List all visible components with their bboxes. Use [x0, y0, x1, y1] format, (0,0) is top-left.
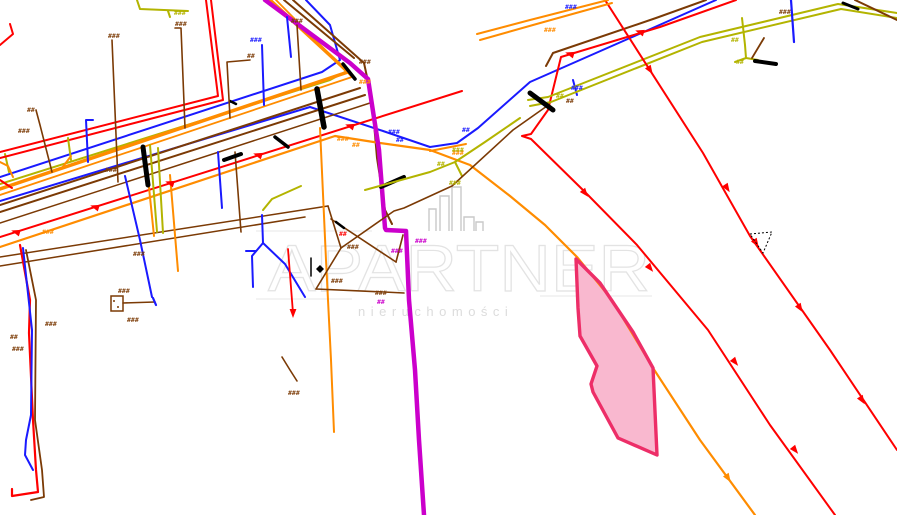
pipe-label: ###	[375, 289, 387, 297]
flow-arrow-icon	[290, 309, 297, 318]
olive-right-a-line	[528, 4, 897, 100]
pipe-label: ###	[571, 84, 583, 92]
olive-bend-line	[263, 186, 301, 210]
pipe-label: ###	[12, 345, 24, 353]
black-seg-right-line	[755, 61, 776, 64]
pipe-label: ###	[127, 316, 139, 324]
brown-corner-topright-line	[855, 0, 897, 20]
pipe-label: ###	[108, 32, 120, 40]
pipe-label: ##	[566, 97, 574, 105]
black-bar-left-line	[143, 147, 148, 185]
pipe-label: ##	[437, 160, 445, 168]
cabinet-dot	[117, 306, 119, 308]
red-topleft-b-line	[0, 0, 223, 158]
brown-ne-a-line	[284, 0, 354, 58]
flow-arrow-icon	[344, 121, 355, 130]
blue-stub-topright-line	[791, 0, 794, 42]
pipe-label: ###	[250, 36, 262, 44]
pipe-label: ###	[18, 127, 30, 135]
black-seg-a-line	[275, 137, 288, 147]
orange-curve-to-parcel-line	[0, 136, 755, 515]
red-corner-line	[0, 24, 13, 45]
pipe-label: ###	[105, 166, 117, 174]
pipe-label: ###	[565, 3, 577, 11]
orange-double-a-line	[477, 0, 608, 34]
pipe-label: ###	[391, 247, 403, 255]
pipe-label: ##	[247, 52, 255, 60]
pipe-label: ###	[337, 135, 349, 143]
pipe-label: ##	[377, 298, 385, 306]
black-bar-mid-line	[224, 154, 241, 160]
black-x-mark-line	[336, 222, 344, 228]
black-topleft-dot-line	[230, 101, 236, 104]
map-viewport[interactable]: APARTNER nieruchomości #################…	[0, 0, 897, 515]
pipe-label: ##	[27, 106, 35, 114]
cabinet-rect-symbol	[111, 296, 123, 311]
brown-stub-bottom-line	[282, 357, 297, 381]
pipe-label: ###	[359, 58, 371, 66]
flow-arrow-icon	[89, 202, 100, 211]
flow-arrow-icon	[252, 150, 263, 159]
pipe-label: ###	[288, 389, 300, 397]
pipe-label: ###	[359, 78, 371, 86]
pipe-label: ##	[736, 58, 744, 66]
blue-branch-2-line	[262, 45, 264, 105]
pipe-label: ##	[339, 230, 347, 238]
pipe-label: ###	[118, 287, 130, 295]
black-bar-junction-line	[317, 89, 324, 127]
brown-hook-right-line	[752, 38, 764, 58]
pipe-label: ###	[544, 26, 556, 34]
red-bottomleft-line	[12, 245, 38, 496]
pipe-label: ###	[415, 237, 427, 245]
pipe-label: ###	[42, 228, 54, 236]
olive-web-b-line	[455, 162, 462, 176]
pipe-label: ###	[45, 320, 57, 328]
brown-corridor-b-line	[0, 95, 365, 212]
pipe-label: ##	[352, 141, 360, 149]
brown-rect-line-line	[123, 302, 155, 303]
pipe-label: ###	[388, 128, 400, 136]
pipe-label: ###	[449, 179, 461, 187]
pipe-label: ###	[779, 8, 791, 16]
pipe-label: ###	[133, 250, 145, 258]
pipe-label: ##	[396, 136, 404, 144]
flow-arrow-icon	[10, 227, 21, 236]
olive-top-stub-line	[168, 11, 170, 17]
pipe-label: ###	[174, 9, 186, 17]
pipe-label: ##	[462, 126, 470, 134]
pipe-label: ###	[452, 146, 464, 154]
pipe-label: ###	[291, 17, 303, 25]
watermark-tagline-text: nieruchomości	[358, 304, 513, 319]
pipe-label: ##	[10, 333, 18, 341]
pipe-label: ###	[331, 277, 343, 285]
pipe-label: ###	[347, 243, 359, 251]
pipe-label: ###	[175, 20, 187, 28]
blue-rect-tick-line	[153, 298, 156, 305]
flow-arrow-icon	[564, 49, 575, 58]
brown-branch-2-line	[112, 40, 118, 182]
orange-double-b-line	[480, 3, 612, 40]
pipe-label: ##	[731, 36, 739, 44]
blue-vert-mid-line	[218, 152, 222, 208]
cabinet-dot	[113, 300, 115, 302]
pipe-label: ##	[556, 92, 564, 100]
utility-map-canvas[interactable]: APARTNER nieruchomości #################…	[0, 0, 897, 515]
